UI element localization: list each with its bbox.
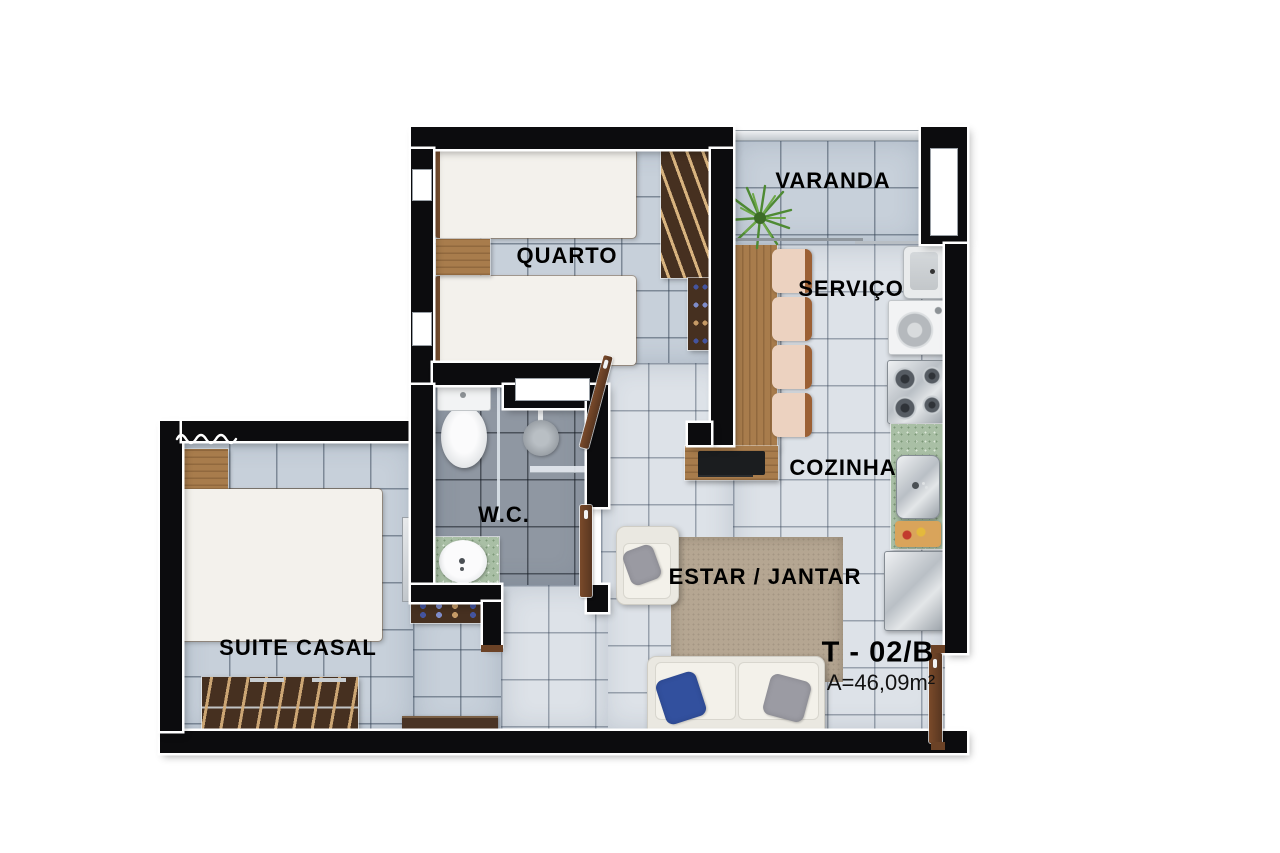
wall-left xyxy=(160,421,182,731)
varanda-window xyxy=(931,149,957,235)
shower-niche-window xyxy=(516,379,589,400)
bar-chair xyxy=(772,393,812,437)
room-label-wc: W.C. xyxy=(478,502,530,528)
quarto-window xyxy=(413,170,431,200)
wardrobe-handle xyxy=(312,678,346,682)
wardrobe-suite xyxy=(202,677,358,734)
bar-chair xyxy=(772,297,812,341)
wall-wc-bottom xyxy=(411,585,501,602)
quarto-window xyxy=(413,313,431,345)
wall-wc-left xyxy=(411,385,433,585)
varanda-glass-rail xyxy=(733,130,923,141)
wardrobe-handle xyxy=(250,678,284,682)
sofa xyxy=(647,656,825,740)
unit-code-label: T - 02/B xyxy=(822,637,935,670)
toilet-tank-button xyxy=(460,392,466,398)
bar-chair xyxy=(772,345,812,389)
wall-quarto-top xyxy=(411,127,733,149)
room-label-estar-jantar: ESTAR / JANTAR xyxy=(669,564,862,590)
cutting-board xyxy=(895,521,941,547)
door-handle xyxy=(603,359,609,369)
toilet-bowl xyxy=(441,406,487,468)
single-bed-1 xyxy=(435,149,636,238)
kitchen-faucet xyxy=(912,482,919,489)
stove xyxy=(887,360,946,424)
room-label-quarto: QUARTO xyxy=(517,243,618,269)
unit-area-label: A=46,09m² xyxy=(827,670,935,696)
washing-machine xyxy=(888,300,946,355)
room-label-varanda: VARANDA xyxy=(775,168,890,194)
door-handle xyxy=(584,510,588,519)
shower-glass-shelf xyxy=(530,466,592,473)
floor-plan: QUARTO VARANDA SERVIÇO COZINHA W.C. ESTA… xyxy=(0,0,1280,853)
shower-glass-panel xyxy=(497,388,500,520)
wall-wc-stub xyxy=(483,602,501,646)
fridge xyxy=(884,551,946,631)
room-label-suite-casal: SUITE CASAL xyxy=(219,635,377,661)
varanda-sliding-door-leaf xyxy=(855,241,922,244)
varanda-sliding-door xyxy=(733,238,863,241)
wall-quarto-right xyxy=(711,149,733,445)
shower-head xyxy=(523,420,559,456)
entry-door-frame-cap xyxy=(931,742,945,750)
wardrobe-quarto xyxy=(661,147,714,278)
suite-bed xyxy=(176,489,382,641)
wall-stub-cap xyxy=(481,645,503,652)
wall-right xyxy=(945,244,967,653)
room-label-cozinha: COZINHA xyxy=(789,455,896,481)
wc-basin-faucet xyxy=(459,558,465,564)
room-label-servico: SERVIÇO xyxy=(798,276,904,302)
laundry-sink-drain xyxy=(930,269,935,274)
bar-table xyxy=(728,245,777,448)
tv xyxy=(698,451,765,475)
curtain-icon xyxy=(175,429,239,445)
wall-quarto-foot xyxy=(688,423,711,445)
suite-headboard-shelf xyxy=(175,449,228,493)
single-bed-2 xyxy=(435,276,636,365)
wc-door xyxy=(580,505,592,597)
nightstand xyxy=(436,239,490,275)
wall-bottom xyxy=(160,731,967,753)
